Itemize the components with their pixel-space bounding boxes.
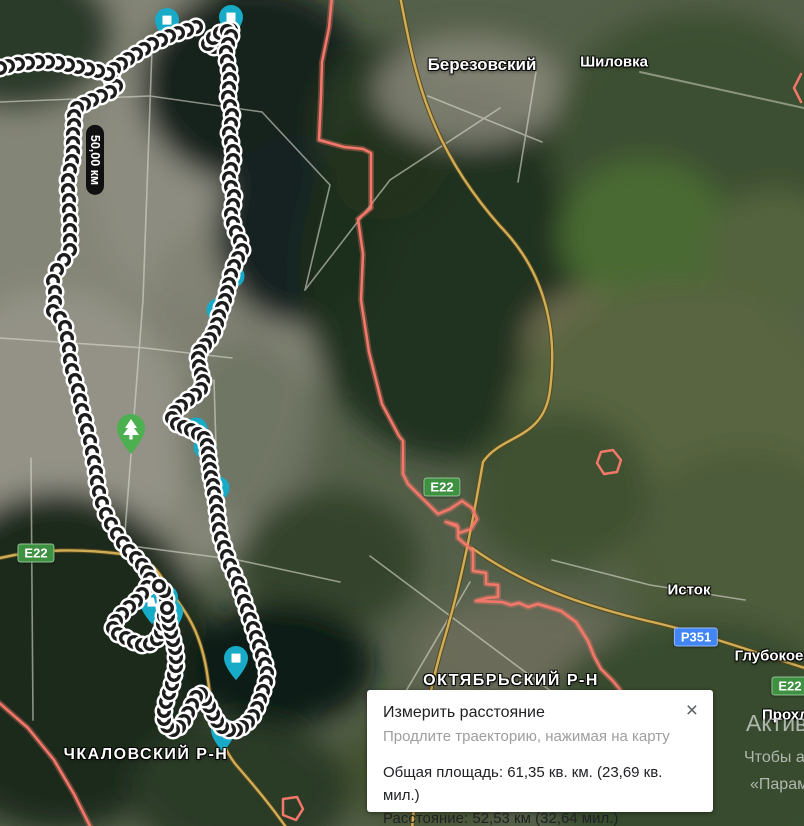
route-dot[interactable] [158,599,177,618]
measure-distance-panel: × Измерить расстояние Продлите траектори… [367,690,713,812]
panel-title: Измерить расстояние [383,704,697,722]
route-dot[interactable] [150,577,169,596]
panel-total-area: Общая площадь: 61,35 кв. км. (23,69 кв. … [383,761,697,807]
panel-distance: Расстояние: 52,53 км (32,64 мил.) [383,807,697,826]
route-distance-flag: 50,00 км [86,125,104,195]
map-viewport[interactable]: БерезовскийШиловкаИстокГлубокоеПрохлЧКАЛ… [0,0,804,826]
close-icon[interactable]: × [684,698,700,723]
panel-hint: Продлите траекторию, нажимая на карту [383,728,697,745]
